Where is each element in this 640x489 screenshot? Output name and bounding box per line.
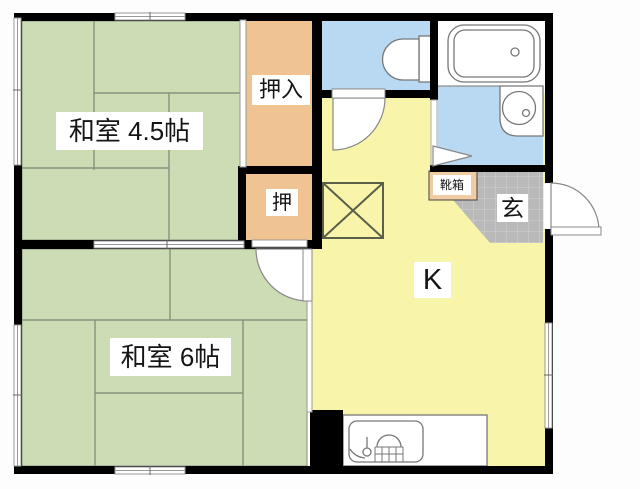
entrance-door-swing-icon (544, 183, 601, 235)
label-shoebox: 靴箱 (433, 175, 471, 195)
wall-genkan-top (430, 165, 553, 172)
window-bottom (115, 466, 185, 475)
fusuma-oshiire (240, 20, 246, 167)
floorplan-drawing (0, 0, 640, 489)
wall-oshi-left (238, 166, 246, 249)
fusuma-oshi (252, 240, 307, 247)
wall-closet-divider (238, 166, 322, 174)
wall-closet-right (312, 13, 322, 249)
kitchen-sink-icon (343, 415, 487, 466)
wall-toilet-bath-divider (430, 13, 438, 100)
label-genkan: 玄 (497, 194, 528, 222)
wall-bottom (14, 466, 553, 474)
label-oshiire: 押入 (252, 75, 310, 105)
label-kitchen: K (414, 262, 451, 298)
window-left-lower (13, 325, 22, 466)
window-left-upper (13, 18, 22, 165)
wall-top (14, 13, 553, 21)
fusuma-room-divider (94, 240, 244, 249)
floorplan-canvas: 和室 4.5帖 和室 6帖 押入 押 K 玄 靴箱 (0, 0, 640, 489)
wash-basin-icon (500, 86, 543, 136)
wall-kitchen-corner-block (310, 410, 343, 470)
label-oshi: 押 (266, 189, 298, 216)
window-right (544, 323, 553, 428)
window-top (115, 12, 185, 21)
label-washitsu45: 和室 4.5帖 (56, 112, 203, 150)
label-washitsu6: 和室 6帖 (110, 338, 231, 376)
bathtub-icon (448, 25, 540, 82)
partition-kitchen-washitsu6 (307, 301, 312, 412)
